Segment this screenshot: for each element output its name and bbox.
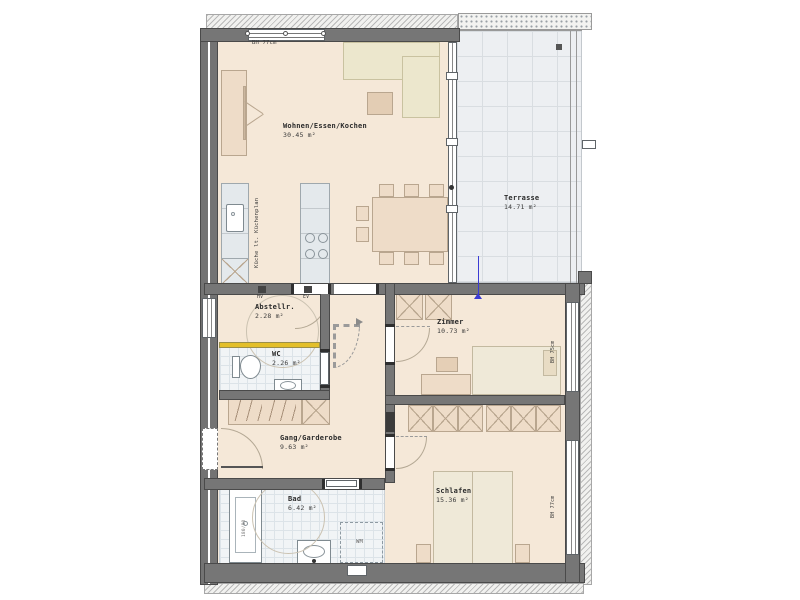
arrow-icon [356, 318, 363, 326]
room-name: Zimmer [437, 318, 464, 326]
ev-box [304, 286, 312, 293]
bed-split-line [472, 471, 473, 564]
glass-wall-mullion [446, 138, 458, 146]
bathtub-size-label: 180/80 [242, 520, 247, 537]
room-area: 15.36 m² [436, 496, 471, 504]
window-post-icon [245, 31, 250, 36]
schlafen-wardrobe [408, 405, 433, 432]
level-marker-line [478, 256, 479, 294]
hanging-clothes-icon [234, 400, 262, 421]
dining-chair [379, 184, 394, 197]
wall-niche [347, 565, 367, 576]
sink-drain-icon [231, 212, 235, 216]
room-name: Wohnen/Essen/Kochen [283, 122, 367, 130]
room-area: 9.63 m² [280, 443, 342, 451]
room-label-wc: WC 2.26 m² [272, 350, 301, 368]
room-label-abstellraum: Abstellr. 2.28 m² [255, 303, 295, 321]
terrace-railing-line [570, 30, 571, 283]
terrace-edge-line [458, 29, 582, 31]
zimmer-wardrobe [425, 292, 452, 320]
room-name: Bad [288, 495, 301, 503]
terrace-door-handle-icon [449, 185, 454, 190]
zimmer-shelf [436, 357, 458, 372]
room-name: Terrasse [504, 194, 539, 202]
nightstand [416, 544, 431, 563]
abstell-window [202, 298, 216, 338]
cooktop-icon [305, 233, 315, 243]
yellow-partition-wall [219, 342, 320, 348]
room-area: 14.71 m² [504, 203, 539, 211]
entrance-door-leaf [221, 466, 263, 468]
window-post-icon [321, 31, 326, 36]
dining-chair [404, 184, 419, 197]
door-jamb [385, 468, 395, 471]
dining-chair [356, 206, 369, 221]
room-name: Schlafen [436, 487, 471, 495]
dining-chair [429, 252, 444, 265]
sofa-chaise [402, 56, 440, 118]
wc-south-wall [219, 390, 330, 400]
dining-chair [379, 252, 394, 265]
schlafen-window [566, 440, 579, 555]
room-label-gang: Gang/Garderobe 9.63 m² [280, 434, 342, 452]
downspout-icon [582, 140, 596, 149]
hv-label: HV [257, 295, 263, 300]
zimmer-schlafen-wall [385, 395, 565, 405]
turning-circle [252, 481, 325, 554]
double-bed [433, 471, 513, 564]
cooktop-icon [318, 249, 328, 259]
bottom-exterior-wall [204, 563, 585, 583]
door-jamb [385, 362, 395, 365]
sill-height-zimmer-label: BH 75cm [550, 341, 556, 363]
glass-wall-mullion [446, 72, 458, 80]
zimmer-desk [421, 374, 471, 395]
gang-cabinet [302, 396, 330, 425]
door-leaf [396, 326, 430, 327]
door-jamb [385, 324, 395, 327]
dining-chair [404, 252, 419, 265]
bad-sliding-door-leaf [326, 480, 357, 487]
zimmer-door-opening [386, 327, 394, 362]
terrace-drain-icon [556, 44, 562, 50]
cooktop-icon [318, 233, 328, 243]
room-label-schlafen: Schlafen 15.36 m² [436, 487, 471, 505]
zimmer-wardrobe [396, 292, 423, 320]
exterior-hatch-right [580, 283, 592, 585]
door-jamb [322, 479, 325, 489]
entrance-door-opening [202, 428, 218, 470]
cooktop-icon [305, 249, 315, 259]
door-leaf [396, 436, 427, 437]
room-name: Abstellr. [255, 303, 295, 311]
room-name: WC [272, 350, 281, 358]
terrace-floor [456, 30, 582, 283]
door-jamb [376, 284, 379, 294]
zimmer-window [566, 302, 579, 392]
window-post-icon [283, 31, 288, 36]
room-area: 30.45 m² [283, 131, 367, 139]
ev-label: EV [303, 295, 309, 300]
dining-chair [356, 227, 369, 242]
hanging-clothes-icon [268, 400, 296, 421]
room-label-bad: Bad 6.42 m² [288, 495, 317, 513]
wall-column [386, 412, 395, 432]
level-marker-icon [474, 293, 482, 299]
door-jamb [291, 284, 294, 294]
kitchen-note-label: Küche lt. Küchenplan [254, 198, 260, 268]
schlafen-wardrobe [486, 405, 511, 432]
door-jamb [328, 284, 331, 294]
schlafen-wardrobe [536, 405, 561, 432]
schlafen-wardrobe [511, 405, 536, 432]
exterior-hatch-bottom [204, 583, 584, 594]
room-area: 2.28 m² [255, 312, 295, 320]
floor-plan-canvas: Wohnen/Essen/Kochen 30.45 m² Terrasse 14… [0, 0, 800, 600]
room-label-wohnen: Wohnen/Essen/Kochen 30.45 m² [283, 122, 367, 140]
room-name: Gang/Garderobe [280, 434, 342, 442]
nightstand [515, 544, 530, 563]
schlafen-door-opening [386, 437, 394, 468]
exterior-hatch-top [206, 14, 458, 29]
room-area: 6.42 m² [288, 504, 317, 512]
top-exterior-wall [200, 28, 460, 42]
room-label-terrasse: Terrasse 14.71 m² [504, 194, 539, 212]
terrace-railing-line [576, 30, 577, 283]
hv-box [258, 286, 266, 293]
glass-wall-mullion [446, 205, 458, 213]
wc-sink-bowl [280, 381, 296, 390]
sill-height-top-label: BH 77cm [252, 40, 277, 46]
coffee-table [367, 92, 393, 115]
door-jamb [385, 434, 395, 437]
room-label-zimmer: Zimmer 10.73 m² [437, 318, 470, 336]
dishwasher [221, 258, 249, 285]
wc-sliding-door-leaf [320, 352, 329, 385]
door-jamb [359, 479, 362, 489]
terrace-gravel-band [458, 13, 592, 30]
dining-chair [429, 184, 444, 197]
door-jamb [320, 349, 330, 352]
kitchen-sink [226, 204, 244, 232]
tv-icon [243, 86, 246, 140]
corridor-opening [334, 284, 376, 294]
door-jamb [320, 385, 330, 388]
room-area: 10.73 m² [437, 327, 470, 335]
sill-height-schlafen-label: BH 77cm [550, 496, 556, 518]
terrace-corner-post [578, 271, 592, 284]
washing-machine-label: WM [356, 539, 363, 545]
schlafen-wardrobe [458, 405, 483, 432]
toilet-tank [232, 356, 240, 378]
room-area: 2.26 m² [272, 359, 301, 367]
dining-table [372, 197, 448, 252]
schlafen-wardrobe [433, 405, 458, 432]
